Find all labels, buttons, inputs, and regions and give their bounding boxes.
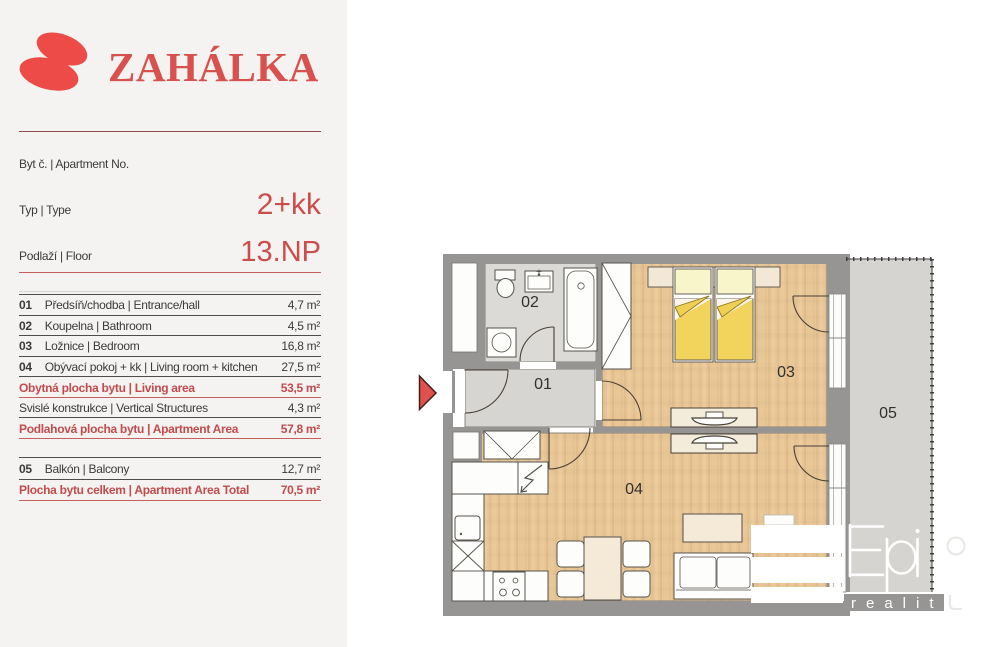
svg-text:03: 03 (777, 364, 795, 381)
svg-text:02: 02 (521, 294, 539, 311)
svg-text:04: 04 (625, 481, 643, 498)
svg-text:realit: realit (851, 595, 944, 612)
svg-text:05: 05 (879, 405, 897, 422)
svg-text:01: 01 (534, 376, 552, 393)
